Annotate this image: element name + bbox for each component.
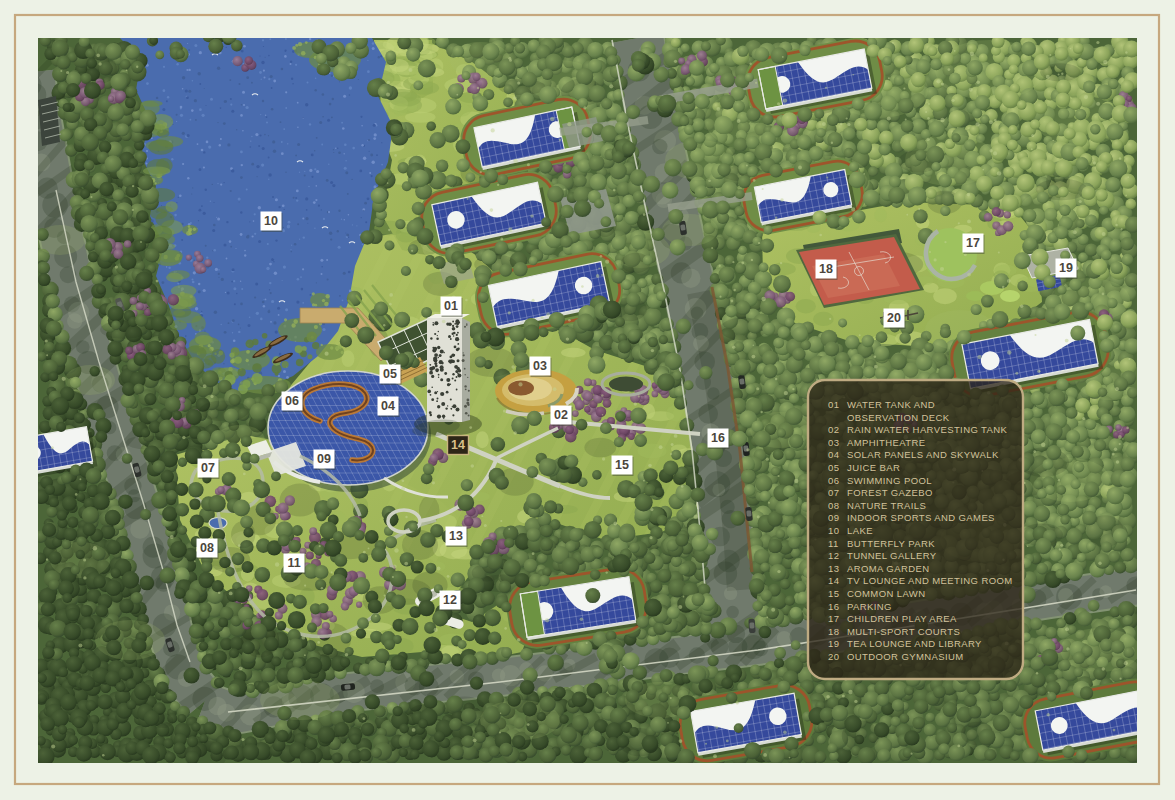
svg-text:12: 12 <box>443 593 457 607</box>
svg-text:18: 18 <box>828 626 839 637</box>
svg-text:09: 09 <box>828 512 839 523</box>
svg-text:MULTI-SPORT COURTS: MULTI-SPORT COURTS <box>847 626 960 637</box>
svg-text:10: 10 <box>828 525 839 536</box>
svg-text:AROMA GARDEN: AROMA GARDEN <box>847 563 929 574</box>
svg-text:TUNNEL GALLERY: TUNNEL GALLERY <box>847 550 937 561</box>
svg-text:08: 08 <box>828 500 839 511</box>
svg-text:RAIN WATER HARVESTING TANK: RAIN WATER HARVESTING TANK <box>847 424 1008 435</box>
svg-text:20: 20 <box>828 651 839 662</box>
svg-text:11: 11 <box>828 538 839 549</box>
svg-text:19: 19 <box>1059 261 1073 275</box>
svg-text:05: 05 <box>828 462 839 473</box>
svg-text:COMMON LAWN: COMMON LAWN <box>847 588 925 599</box>
svg-text:LAKE: LAKE <box>847 525 873 536</box>
svg-text:19: 19 <box>828 638 839 649</box>
svg-text:14: 14 <box>451 438 465 452</box>
svg-text:17: 17 <box>966 236 980 250</box>
svg-text:10: 10 <box>264 214 278 228</box>
svg-text:06: 06 <box>285 394 299 408</box>
svg-text:13: 13 <box>449 529 463 543</box>
svg-text:07: 07 <box>828 487 839 498</box>
svg-text:01: 01 <box>828 399 839 410</box>
svg-text:02: 02 <box>828 424 839 435</box>
svg-text:15: 15 <box>615 458 629 472</box>
svg-text:16: 16 <box>828 601 839 612</box>
svg-text:01: 01 <box>444 299 458 313</box>
svg-text:02: 02 <box>554 408 568 422</box>
svg-text:03: 03 <box>828 437 839 448</box>
svg-text:06: 06 <box>828 475 839 486</box>
svg-text:INDOOR SPORTS AND GAMES: INDOOR SPORTS AND GAMES <box>847 512 995 523</box>
svg-text:WATER TANK AND: WATER TANK AND <box>847 399 935 410</box>
svg-text:BUTTERFLY PARK: BUTTERFLY PARK <box>847 538 935 549</box>
svg-text:SOLAR PANELS AND SKYWALK: SOLAR PANELS AND SKYWALK <box>847 449 999 460</box>
svg-text:11: 11 <box>287 556 300 570</box>
svg-text:09: 09 <box>317 452 331 466</box>
svg-text:CHILDREN PLAY AREA: CHILDREN PLAY AREA <box>847 613 957 624</box>
svg-text:OBSERVATION DECK: OBSERVATION DECK <box>847 412 950 423</box>
svg-text:PARKING: PARKING <box>847 601 892 612</box>
svg-text:FOREST GAZEBO: FOREST GAZEBO <box>847 487 933 498</box>
svg-text:TEA LOUNGE AND LIBRARY: TEA LOUNGE AND LIBRARY <box>847 638 982 649</box>
svg-text:OUTDOOR GYMNASIUM: OUTDOOR GYMNASIUM <box>847 651 964 662</box>
svg-text:03: 03 <box>533 359 547 373</box>
svg-text:05: 05 <box>383 367 397 381</box>
svg-text:AMPHITHEATRE: AMPHITHEATRE <box>847 437 926 448</box>
svg-text:TV LOUNGE AND MEETING ROOM: TV LOUNGE AND MEETING ROOM <box>847 575 1013 586</box>
svg-text:SWIMMING POOL: SWIMMING POOL <box>847 475 932 486</box>
svg-text:14: 14 <box>828 575 839 586</box>
svg-text:07: 07 <box>201 461 215 475</box>
svg-text:JUICE BAR: JUICE BAR <box>847 462 900 473</box>
svg-text:15: 15 <box>828 588 839 599</box>
svg-text:04: 04 <box>381 399 395 413</box>
svg-text:13: 13 <box>828 563 839 574</box>
svg-text:17: 17 <box>828 613 839 624</box>
svg-text:18: 18 <box>819 262 833 276</box>
svg-text:08: 08 <box>200 541 214 555</box>
svg-text:20: 20 <box>887 311 901 325</box>
svg-text:16: 16 <box>711 431 725 445</box>
svg-text:04: 04 <box>828 449 839 460</box>
svg-text:NATURE TRAILS: NATURE TRAILS <box>847 500 926 511</box>
svg-text:12: 12 <box>828 550 839 561</box>
